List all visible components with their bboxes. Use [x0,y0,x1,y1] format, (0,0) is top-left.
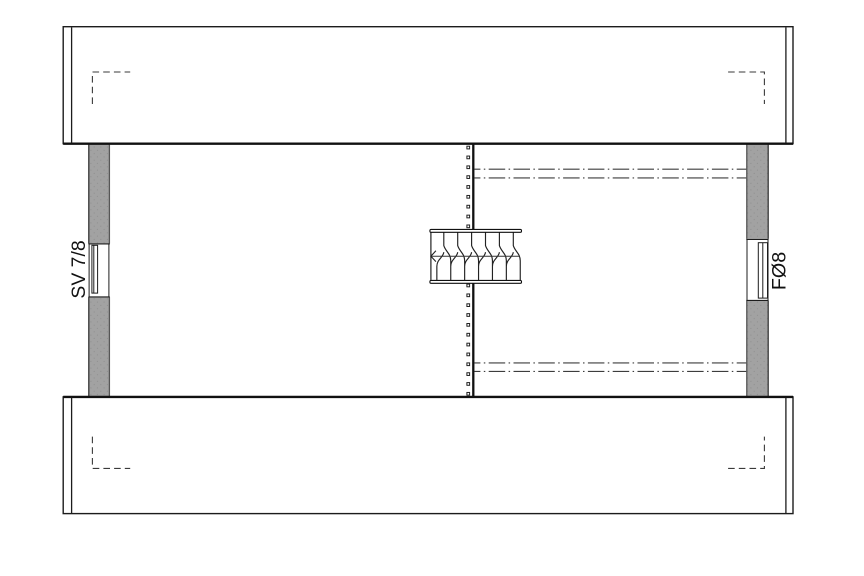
svg-text:SV 7/8: SV 7/8 [68,240,90,298]
svg-text:FØ8: FØ8 [769,252,791,290]
